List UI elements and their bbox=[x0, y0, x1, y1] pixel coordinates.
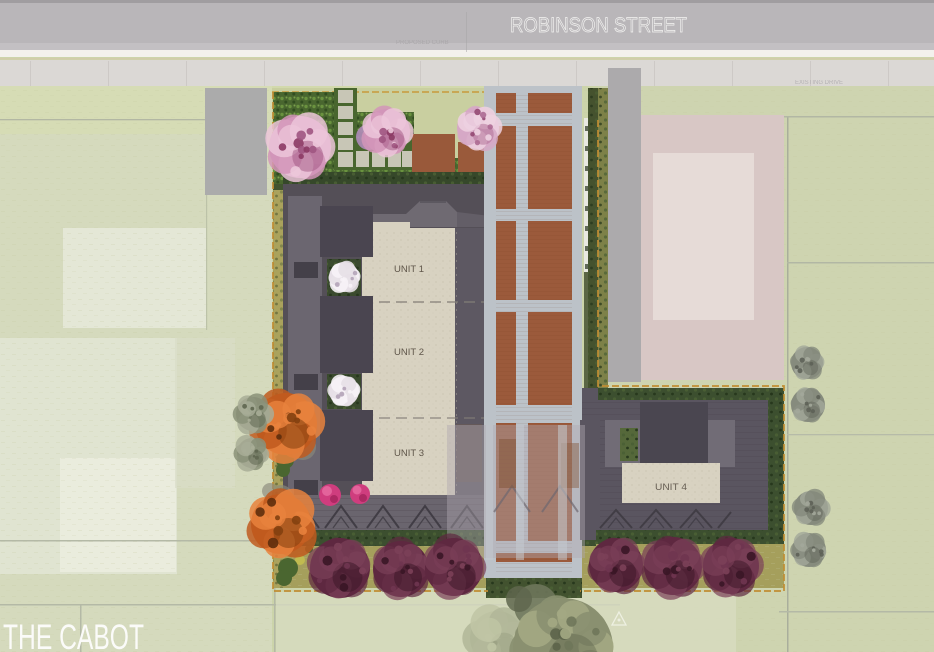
svg-text:UNIT 3: UNIT 3 bbox=[394, 448, 424, 458]
svg-text:PROPOSED CURB: PROPOSED CURB bbox=[396, 40, 449, 46]
svg-text:ROBINSON STREET: ROBINSON STREET bbox=[510, 14, 687, 37]
svg-text:UNIT 4: UNIT 4 bbox=[655, 482, 687, 493]
svg-text:UNIT 1: UNIT 1 bbox=[394, 264, 424, 274]
svg-text:EXISTING DRIVE: EXISTING DRIVE bbox=[795, 80, 843, 86]
svg-text:UNIT 2: UNIT 2 bbox=[394, 347, 424, 357]
svg-text:THE CABOT: THE CABOT bbox=[3, 618, 144, 652]
